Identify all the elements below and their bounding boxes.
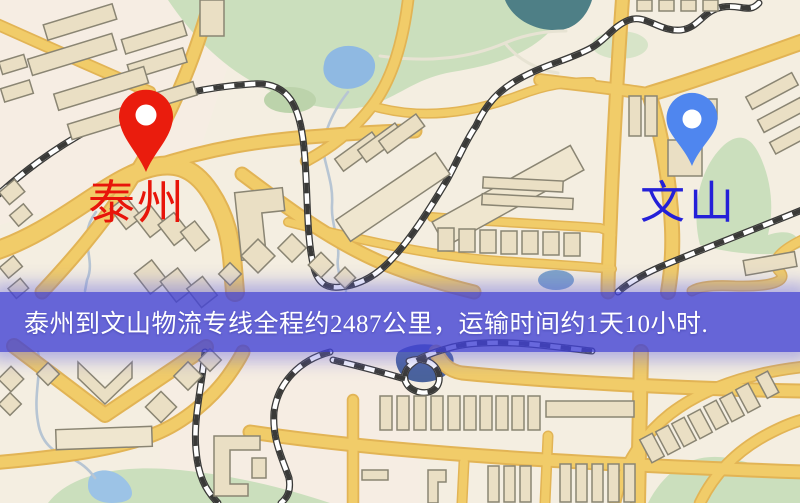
route-info-banner: 泰州到文山物流专线全程约2487公里，运输时间约1天10小时. xyxy=(0,292,800,352)
route-info-text: 泰州到文山物流专线全程约2487公里，运输时间约1天10小时. xyxy=(0,304,708,340)
logistics-route-map: 泰州 文山 泰州到文山物流专线全程约2487公里，运输时间约1天10小时. xyxy=(0,0,800,503)
destination-city-label: 文山 xyxy=(640,178,738,228)
map-canvas: 泰州 文山 xyxy=(0,0,800,503)
origin-city-label: 泰州 xyxy=(88,178,186,230)
